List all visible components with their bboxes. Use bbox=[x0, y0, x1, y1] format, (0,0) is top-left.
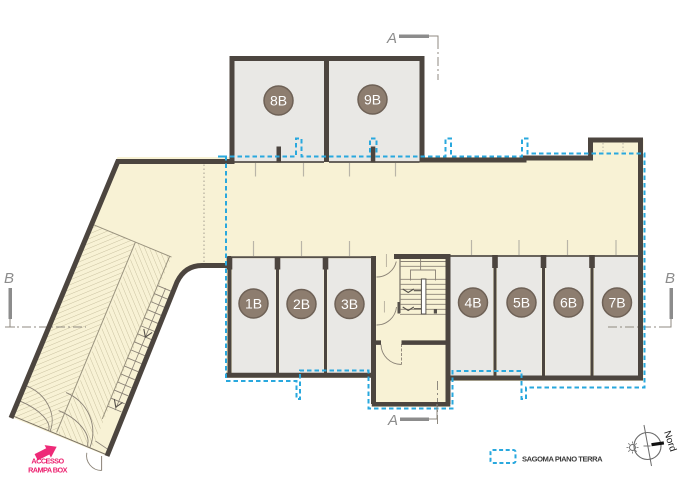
svg-text:8B: 8B bbox=[270, 93, 287, 109]
svg-text:1B: 1B bbox=[245, 296, 262, 312]
svg-text:A: A bbox=[386, 30, 397, 47]
svg-text:2B: 2B bbox=[293, 296, 310, 312]
svg-text:4B: 4B bbox=[464, 295, 481, 311]
svg-text:ACCESSO: ACCESSO bbox=[31, 457, 64, 466]
svg-text:3B: 3B bbox=[341, 296, 358, 312]
svg-text:B: B bbox=[665, 270, 675, 287]
svg-text:SAGOMA PIANO TERRA: SAGOMA PIANO TERRA bbox=[522, 455, 603, 464]
svg-text:9B: 9B bbox=[364, 92, 381, 108]
svg-text:6B: 6B bbox=[560, 295, 577, 311]
svg-text:B: B bbox=[4, 270, 14, 287]
svg-text:7B: 7B bbox=[608, 295, 625, 311]
svg-text:RAMPA BOX: RAMPA BOX bbox=[28, 466, 68, 475]
svg-text:A: A bbox=[387, 412, 398, 429]
svg-text:5B: 5B bbox=[513, 295, 530, 311]
